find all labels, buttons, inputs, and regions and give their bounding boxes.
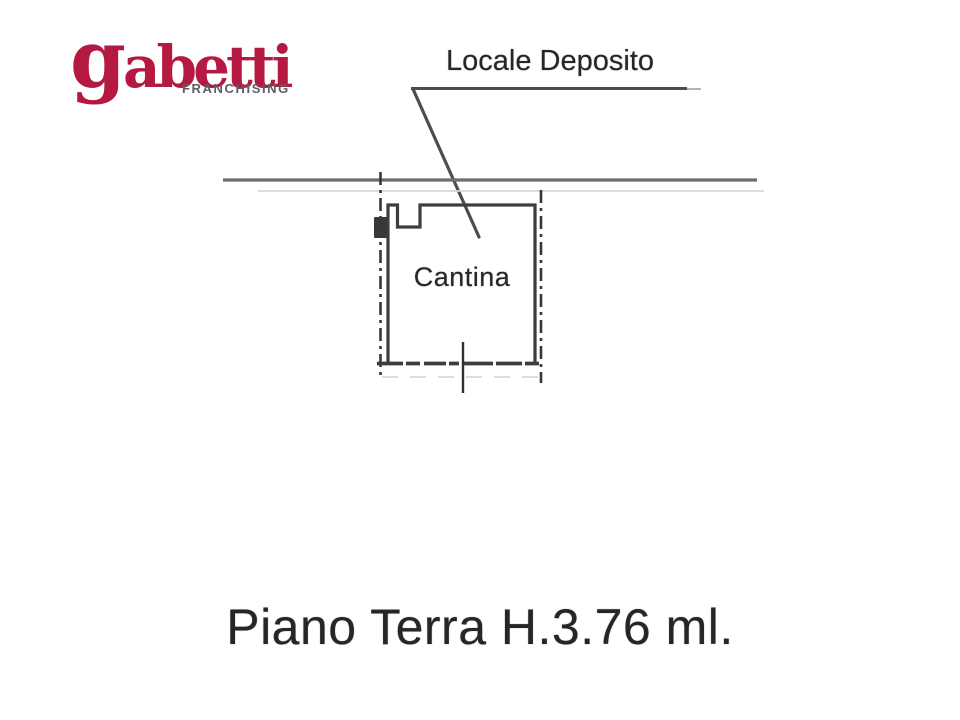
wall-hatch-block (374, 217, 387, 238)
scanned-floorplan-page: gabetti FRANCHISING Locale Deposito Cant… (0, 0, 960, 720)
callout-label: Locale Deposito (412, 45, 688, 78)
floor-caption: Piano Terra H.3.76 ml. (0, 598, 960, 656)
room-label: Cantina (388, 262, 536, 293)
callout-leader-line (413, 89, 479, 237)
